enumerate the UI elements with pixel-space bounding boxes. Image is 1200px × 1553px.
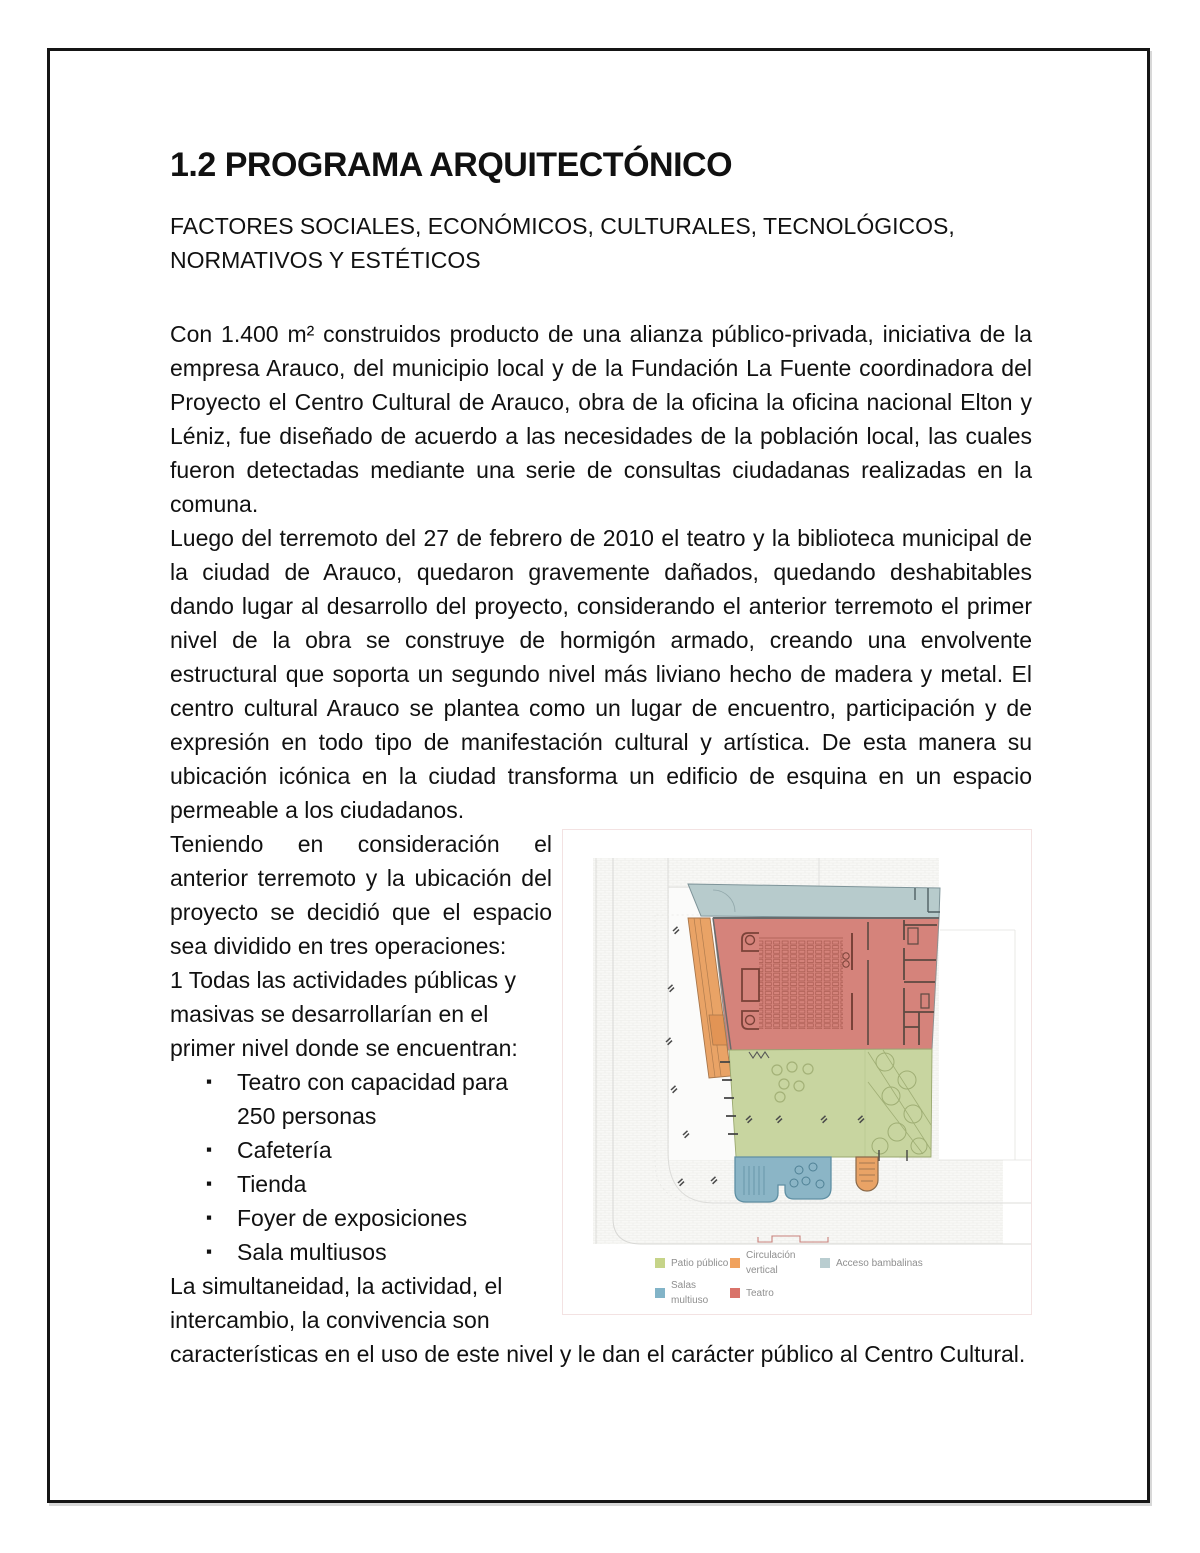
section-subtitle: FACTORES SOCIALES, ECONÓMICOS, CULTURALE… — [170, 209, 1032, 277]
salas-color-swatch-icon — [655, 1288, 665, 1298]
theater-seating-grid — [759, 940, 843, 1029]
page-border-frame: 1.2 PROGRAMA ARQUITECTÓNICO FACTORES SOC… — [47, 48, 1150, 1503]
list-item-teatro: Teatro con capacidad para 250 personas — [170, 1065, 1032, 1133]
teatro-color-swatch-icon — [730, 1288, 740, 1298]
paragraph-earthquake: Luego del terremoto del 27 de febrero de… — [170, 521, 1032, 827]
legend-item-salas: Salas multiuso — [655, 1278, 730, 1308]
list-item-tienda: Tienda — [170, 1167, 1032, 1201]
paragraph-intro: Con 1.400 m² construidos producto de una… — [170, 317, 1032, 521]
zone-acceso-bambalinas — [688, 884, 940, 918]
list-item-sala-multiusos: Sala multiusos — [170, 1235, 1032, 1269]
legend-item-teatro: Teatro — [730, 1286, 820, 1301]
legend-label: Teatro — [746, 1286, 774, 1301]
program-bullet-list: Teatro con capacidad para 250 personas C… — [170, 1065, 1032, 1269]
zone-teatro — [713, 918, 939, 1050]
body-text-block: Con 1.400 m² construidos producto de una… — [170, 317, 1032, 1371]
page-content: 1.2 PROGRAMA ARQUITECTÓNICO FACTORES SOC… — [170, 145, 1032, 1371]
document-page: 1.2 PROGRAMA ARQUITECTÓNICO FACTORES SOC… — [0, 0, 1200, 1553]
legend-row-2: Salas multiuso Teatro — [655, 1278, 1031, 1308]
list-item-foyer: Foyer de exposiciones — [170, 1201, 1032, 1235]
list-item-cafeteria: Cafetería — [170, 1133, 1032, 1167]
section-title: 1.2 PROGRAMA ARQUITECTÓNICO — [170, 145, 1032, 185]
legend-label: Salas multiuso — [671, 1278, 730, 1308]
